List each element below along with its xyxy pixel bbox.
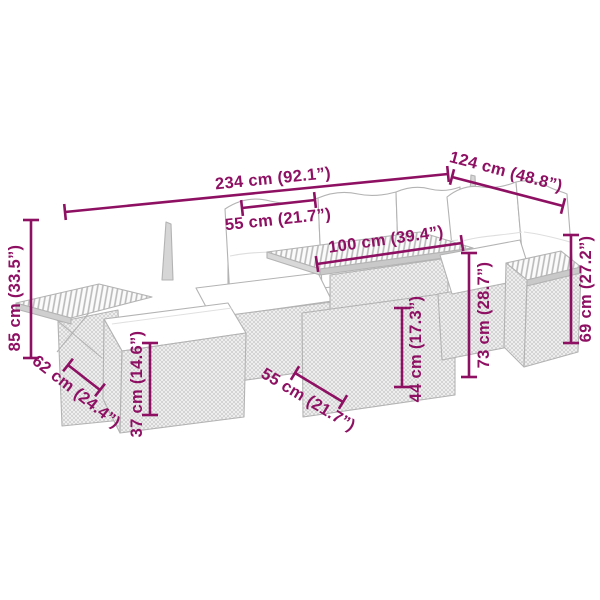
- right-armrest-front: [524, 273, 581, 367]
- dim-label-armrest-height: 69 cm (27.2”): [578, 236, 595, 343]
- dim-label-back-height: 85 cm (33.5”): [7, 245, 24, 352]
- dim-label-footstool-height: 37 cm (14.6”): [129, 331, 146, 438]
- dim-label-table-height: 44 cm (17.3”): [408, 296, 425, 403]
- dim-label-sofa-height: 73 cm (28.7”): [476, 262, 493, 369]
- right-armrest-side: [504, 263, 527, 367]
- table-storage-box: [302, 292, 455, 417]
- cushion-peg: [162, 222, 173, 280]
- sofa-set-sketch: [0, 0, 600, 600]
- product-dimension-diagram: 234 cm (92.1”) 124 cm (48.8”) 55 cm (21.…: [0, 0, 600, 600]
